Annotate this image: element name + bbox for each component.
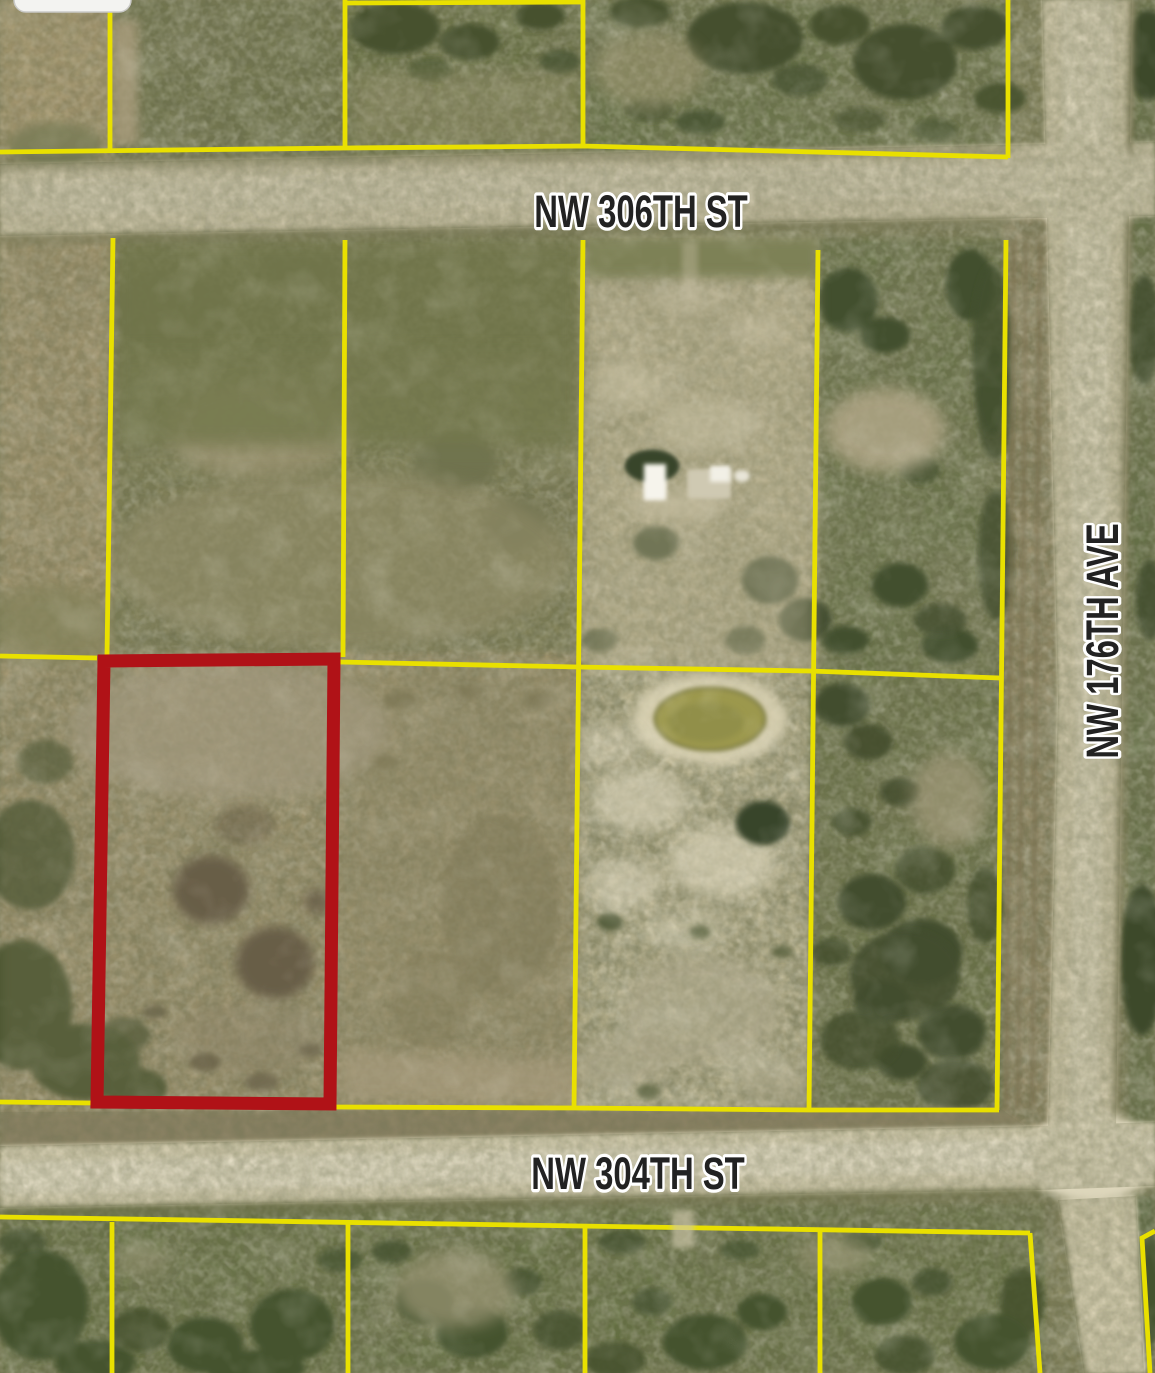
svg-text:NW 304TH ST: NW 304TH ST	[531, 1149, 744, 1199]
svg-text:NW 176TH AVE: NW 176TH AVE	[1078, 523, 1128, 758]
svg-text:NW 306TH ST: NW 306TH ST	[534, 187, 747, 237]
